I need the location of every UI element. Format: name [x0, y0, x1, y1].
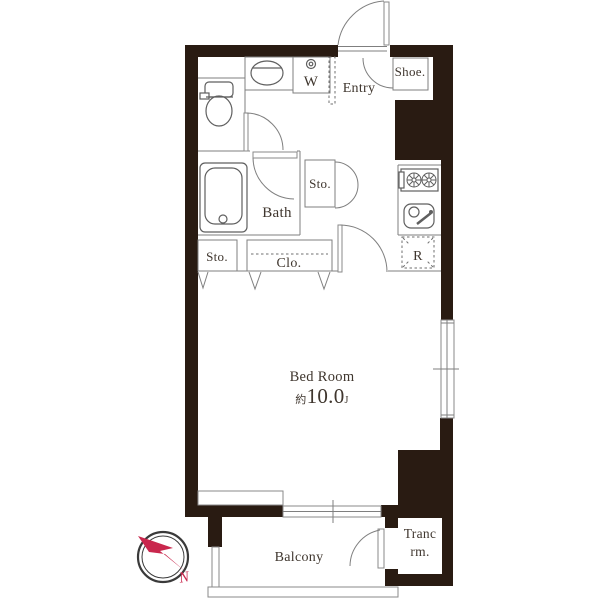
storage-lower-label: Sto. — [206, 249, 228, 264]
washer-faucet-icon — [307, 60, 316, 69]
floor-plan-drawing: W Entry Shoe. Bath Sto. — [0, 0, 600, 600]
wall-right-upper — [433, 56, 453, 100]
balcony-side-wall — [212, 547, 219, 588]
storage-upper: Sto. — [305, 160, 358, 208]
refrigerator-space: R — [402, 237, 434, 268]
compass-icon: N — [138, 532, 191, 587]
trunk-door-leaf — [378, 529, 384, 568]
window-right — [433, 320, 459, 418]
closet-door-mark-1 — [198, 272, 208, 288]
storage-upper-label: Sto. — [309, 176, 331, 191]
bedroom-door — [338, 225, 387, 272]
bedroom-size: 約10.0J — [295, 384, 348, 408]
wall-trunk-left-upper — [385, 517, 398, 528]
wall-top-left — [185, 45, 338, 57]
storage-upper-door-arc-top — [335, 162, 358, 185]
balcony: Balcony — [208, 547, 398, 597]
balcony-label: Balcony — [275, 550, 324, 565]
closet-label: Clo. — [277, 256, 302, 271]
trunk-label-line2: rm. — [410, 544, 429, 559]
closet-door-mark-3 — [318, 272, 330, 289]
bedroom-size-unit: J — [345, 395, 349, 406]
front-door-swing-arc — [338, 1, 384, 45]
sink-icon — [404, 204, 434, 228]
balcony-railing — [208, 587, 398, 597]
window-balcony — [283, 500, 381, 523]
bath-label: Bath — [262, 205, 292, 221]
kitchen: R — [398, 165, 441, 268]
compass-north-label: N — [177, 569, 192, 587]
bathtub-icon — [200, 163, 247, 232]
bath-door-swing-arc — [253, 158, 294, 199]
wall-top-right — [390, 45, 453, 57]
closet-door-mark-2 — [249, 272, 261, 289]
bedroom-size-value: 10.0 — [307, 384, 345, 408]
wall-left — [185, 45, 198, 517]
wall-balcony-pillar — [208, 515, 222, 547]
window-sill-bottom — [198, 491, 283, 505]
bedroom-label: Bed Room — [290, 369, 355, 385]
storage-upper-door-arc-bottom — [335, 185, 358, 208]
closets: Sto. Clo. — [198, 240, 441, 289]
entry-label: Entry — [343, 81, 376, 96]
toilet-door-swing-arc — [246, 113, 283, 150]
trunk-label-line1: Tranc — [404, 526, 437, 541]
stove-icon — [399, 169, 438, 191]
washbasin-icon — [251, 61, 283, 85]
trunk-room: Tranc rm. — [350, 526, 436, 568]
compass-needle — [138, 536, 186, 572]
wall-bottom-right-stub — [381, 505, 398, 517]
washer-label: W — [304, 74, 319, 90]
toilet-icon — [200, 82, 233, 126]
floor-plan-page: W Entry Shoe. Bath Sto. — [0, 0, 600, 600]
wall-bottom-left — [185, 505, 283, 517]
wall-right-below-window — [440, 418, 453, 451]
wall-trunk-top-block — [398, 450, 453, 518]
bedroom-size-prefix: 約 — [295, 392, 306, 406]
wall-right-mid — [441, 160, 453, 320]
toilet-door-leaf — [244, 113, 248, 151]
front-door-leaf — [384, 2, 389, 45]
bedroom-door-swing-arc — [340, 225, 387, 272]
wall-pillar-entry — [395, 100, 453, 160]
refrigerator-label: R — [413, 249, 423, 264]
bedroom-door-leaf — [338, 225, 342, 272]
shoe-label: Shoe. — [395, 64, 426, 79]
bath-door-leaf — [253, 152, 297, 158]
wall-trunk-bottom — [385, 574, 453, 586]
wall-trunk-left-lower — [385, 569, 398, 575]
washbasin-area: W — [245, 57, 330, 93]
bath-room: Bath — [198, 151, 300, 235]
trunk-door-swing-arc — [350, 530, 380, 566]
